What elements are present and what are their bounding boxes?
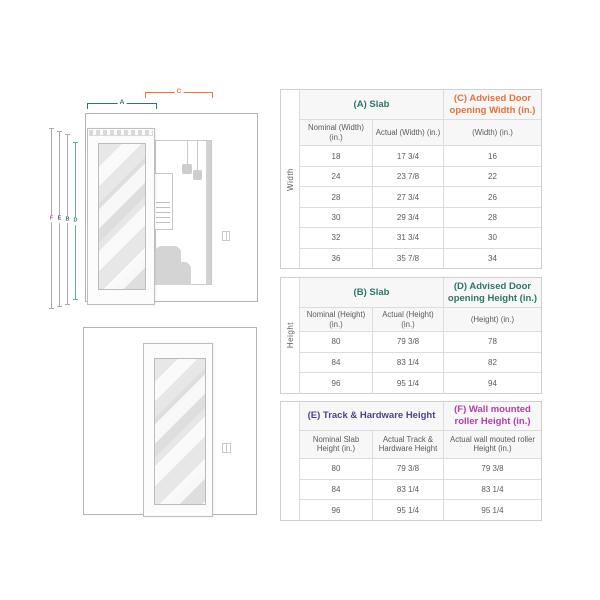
dim-label-e: E — [57, 215, 63, 223]
table-cell: 84 — [300, 353, 372, 373]
group-header-track-right: (F) Wall mounted roller Height (in.) — [443, 402, 541, 430]
column-header: Nominal (Width) (in.) — [300, 120, 372, 145]
dim-label-d: D — [73, 217, 79, 225]
table-side-col: Height — [281, 278, 300, 393]
table-row: 9695 1/494 — [300, 372, 541, 393]
column-header: Actual wall mouted roller Height (in.) — [443, 431, 541, 459]
dim-label-b: B — [65, 216, 71, 224]
spec-table-height: Height(B) Slab(D) Advised Door opening H… — [280, 277, 542, 394]
table-cell: 78 — [443, 332, 541, 352]
table-cell: 35 7/8 — [372, 249, 443, 268]
table-cell: 94 — [443, 373, 541, 393]
table-cell: 34 — [443, 249, 541, 268]
door-glass-panel — [98, 143, 146, 290]
table-cell: 26 — [443, 187, 541, 206]
table-cell: 17 3/4 — [372, 146, 443, 165]
table-cell: 30 — [443, 228, 541, 247]
table-cell: 32 — [300, 228, 372, 247]
table-cell: 82 — [443, 353, 541, 373]
table-cell: 80 — [300, 459, 372, 479]
dim-line-b: B — [65, 134, 70, 305]
dim-line-e: E — [57, 131, 62, 307]
table-cell: 95 1/4 — [372, 500, 443, 520]
table-row: 2423 7/822 — [300, 166, 541, 186]
dim-line-f: F — [49, 128, 54, 309]
table-side-label: Height — [286, 322, 295, 348]
table-group-row: (B) Slab(D) Advised Door opening Height … — [300, 278, 541, 307]
table-cell: 80 — [300, 332, 372, 352]
spec-table-width: Width(A) Slab(C) Advised Door opening Wi… — [280, 89, 542, 269]
column-header: Nominal (Height) (in.) — [300, 308, 372, 331]
table-group-row: (A) Slab(C) Advised Door opening Width (… — [300, 90, 541, 119]
column-header: Nominal Slab Height (in.) — [300, 431, 372, 459]
spec-table-track: (E) Track & Hardware Height(F) Wall moun… — [280, 401, 542, 521]
pendant-lamp-icon — [193, 170, 202, 180]
light-switch-icon — [222, 231, 230, 241]
pendant-cord — [197, 141, 198, 171]
group-header-width-left: (A) Slab — [300, 90, 443, 119]
table-body: (A) Slab(C) Advised Door opening Width (… — [300, 90, 541, 268]
table-group-row: (E) Track & Hardware Height(F) Wall moun… — [300, 402, 541, 430]
group-header-height-left: (B) Slab — [300, 278, 443, 307]
dim-line-d: D — [73, 142, 78, 300]
dim-label-a: A — [118, 100, 127, 107]
column-header: Actual (Width) (in.) — [372, 120, 443, 145]
door-glass-panel — [154, 358, 206, 505]
sofa-arm-shape — [174, 262, 191, 285]
table-cell: 96 — [300, 373, 372, 393]
table-row: 1817 3/416 — [300, 145, 541, 165]
table-cell: 83 1/4 — [372, 480, 443, 500]
table-cell: 28 — [300, 187, 372, 206]
table-cell: 84 — [300, 480, 372, 500]
group-header-height-right: (D) Advised Door opening Height (in.) — [443, 278, 541, 307]
table-row: 8079 3/878 — [300, 331, 541, 352]
table-cell: 36 — [300, 249, 372, 268]
table-side-col — [281, 402, 300, 520]
table-cell: 28 — [443, 208, 541, 227]
table-row: 3029 3/428 — [300, 207, 541, 227]
table-cell: 16 — [443, 146, 541, 165]
dim-label-c: C — [175, 89, 184, 96]
table-row: 8483 1/483 1/4 — [300, 479, 541, 500]
table-side-label: Width — [286, 168, 295, 191]
dim-label-f: F — [49, 215, 54, 223]
table-cell: 30 — [300, 208, 372, 227]
table-header-row: Nominal (Height) (in.)Actual (Height) (i… — [300, 307, 541, 331]
table-cell: 18 — [300, 146, 372, 165]
table-row: 8079 3/879 3/8 — [300, 458, 541, 479]
pendant-cord — [187, 141, 188, 165]
room-window — [153, 173, 173, 230]
table-cell: 96 — [300, 500, 372, 520]
table-cell: 29 3/4 — [372, 208, 443, 227]
opening-side-jamb — [206, 141, 211, 284]
table-row: 9695 1/495 1/4 — [300, 499, 541, 520]
table-cell: 95 1/4 — [372, 373, 443, 393]
table-row: 3231 3/430 — [300, 227, 541, 247]
table-header-row: Nominal Slab Height (in.)Actual Track & … — [300, 430, 541, 459]
group-header-track-left: (E) Track & Hardware Height — [300, 402, 443, 430]
column-header: Actual (Height) (in.) — [372, 308, 443, 331]
table-cell: 27 3/4 — [372, 187, 443, 206]
table-row: 3635 7/834 — [300, 248, 541, 268]
light-switch-icon — [222, 443, 231, 453]
group-header-width-right: (C) Advised Door opening Width (in.) — [443, 90, 541, 119]
table-header-row: Nominal (Width) (in.)Actual (Width) (in.… — [300, 119, 541, 145]
column-header: Actual Track & Hardware Height — [372, 431, 443, 459]
table-cell: 79 3/8 — [372, 459, 443, 479]
table-cell: 83 1/4 — [443, 480, 541, 500]
table-cell: 23 7/8 — [372, 167, 443, 186]
door-slab-open — [87, 128, 155, 305]
pendant-lamp-icon — [182, 164, 192, 174]
column-header: (Height) (in.) — [443, 308, 541, 331]
table-cell: 22 — [443, 167, 541, 186]
door-slab-closed — [143, 343, 213, 517]
table-cell: 95 1/4 — [443, 500, 541, 520]
table-row: 2827 3/426 — [300, 186, 541, 206]
table-cell: 79 3/8 — [443, 459, 541, 479]
table-side-col: Width — [281, 90, 300, 268]
table-cell: 83 1/4 — [372, 353, 443, 373]
table-row: 8483 1/482 — [300, 352, 541, 373]
table-cell: 24 — [300, 167, 372, 186]
door-track — [89, 130, 153, 136]
door-dimension-guide: C A F E B D Width(A) Slab(C) Advised Doo… — [0, 0, 600, 600]
window-blinds — [156, 202, 170, 226]
dim-bracket-c: C — [145, 92, 213, 98]
table-cell: 31 3/4 — [372, 228, 443, 247]
column-header: (Width) (in.) — [443, 120, 541, 145]
dim-bracket-a: A — [87, 103, 157, 109]
table-body: (E) Track & Hardware Height(F) Wall moun… — [300, 402, 541, 520]
table-body: (B) Slab(D) Advised Door opening Height … — [300, 278, 541, 393]
table-cell: 79 3/8 — [372, 332, 443, 352]
